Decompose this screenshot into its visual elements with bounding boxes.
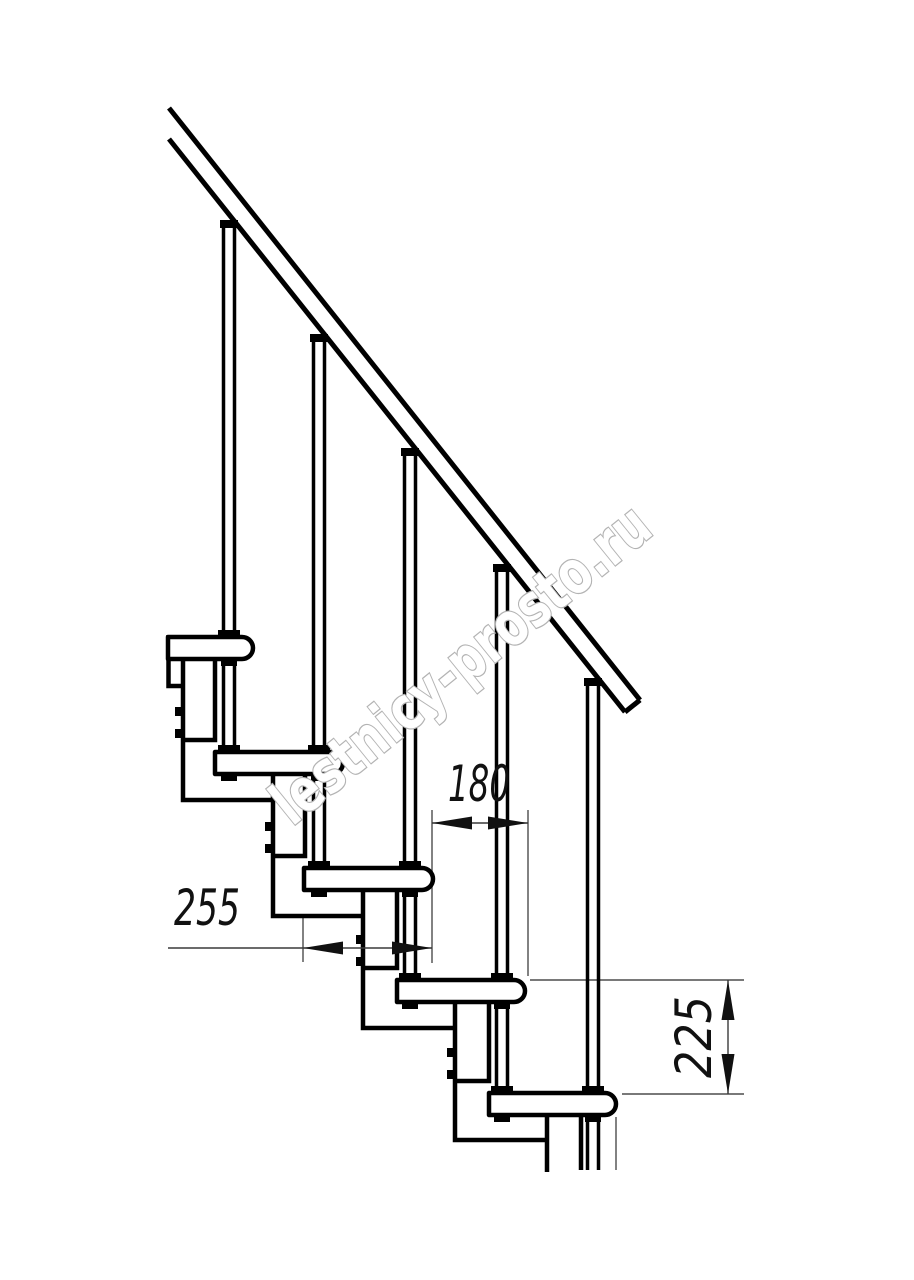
module-bolt <box>175 729 183 738</box>
technical-drawing-page: 180 255 225 lestnicy-prosto.ru <box>0 0 914 1280</box>
tread <box>168 637 253 659</box>
baluster-base-flange <box>399 861 421 868</box>
pipe-flange <box>308 861 330 868</box>
baluster-rod <box>314 342 325 745</box>
baluster <box>308 334 330 752</box>
support-pipe <box>588 1115 599 1170</box>
pipe-nut <box>221 774 237 781</box>
module-bolt <box>265 822 273 831</box>
tread <box>489 1093 616 1115</box>
baluster-rod <box>588 686 599 1086</box>
baluster <box>582 678 604 1093</box>
module-bolt <box>447 1070 455 1079</box>
baluster-base-flange <box>491 973 513 980</box>
dimension-225: 225 <box>665 980 735 1094</box>
dimension-label-255: 255 <box>174 879 240 937</box>
support-pipe <box>405 890 416 975</box>
pipe-flange <box>491 1086 513 1093</box>
module-bolt <box>356 935 364 944</box>
pipe-nut <box>402 890 418 897</box>
handrail-end-cut <box>625 700 640 712</box>
baluster-top-cap <box>401 448 419 456</box>
module-bolt <box>265 844 273 853</box>
arrowhead-left <box>432 817 472 830</box>
module-bolt <box>175 707 183 716</box>
tread <box>397 980 525 1002</box>
arrowhead-up <box>722 980 735 1020</box>
baluster-top-cap <box>493 564 511 572</box>
balusters <box>218 220 604 1093</box>
support-pipe <box>497 1002 508 1088</box>
pipe-nut <box>221 659 237 666</box>
staircase-technical-drawing: 180 255 225 lestnicy-prosto.ru <box>0 0 914 1280</box>
arrowhead-left <box>303 942 343 955</box>
baluster-base-flange <box>582 1086 604 1093</box>
baluster-top-cap <box>220 220 238 228</box>
tread <box>304 868 433 890</box>
module-bolt <box>356 957 364 966</box>
baluster-base-flange <box>218 630 240 637</box>
baluster <box>218 220 240 637</box>
module-bolt <box>447 1048 455 1057</box>
baluster-rod <box>224 228 235 630</box>
pipe-flange <box>218 745 240 752</box>
pipe-nut <box>585 1115 601 1122</box>
pipe-nut <box>494 1115 510 1122</box>
pipe-nut <box>311 890 327 897</box>
pipe-flange <box>399 973 421 980</box>
arrowhead-down <box>722 1054 735 1094</box>
support-module <box>547 1115 581 1172</box>
dimension-180: 180 <box>432 755 528 830</box>
support-pipe <box>224 659 235 747</box>
pipe-nut <box>494 1002 510 1009</box>
baluster-top-cap <box>310 334 328 342</box>
pipe-nut <box>402 1002 418 1009</box>
dimension-label-180: 180 <box>448 755 510 813</box>
baluster-top-cap <box>584 678 602 686</box>
dimension-label-225: 225 <box>665 996 723 1078</box>
arrowhead-right <box>392 942 432 955</box>
